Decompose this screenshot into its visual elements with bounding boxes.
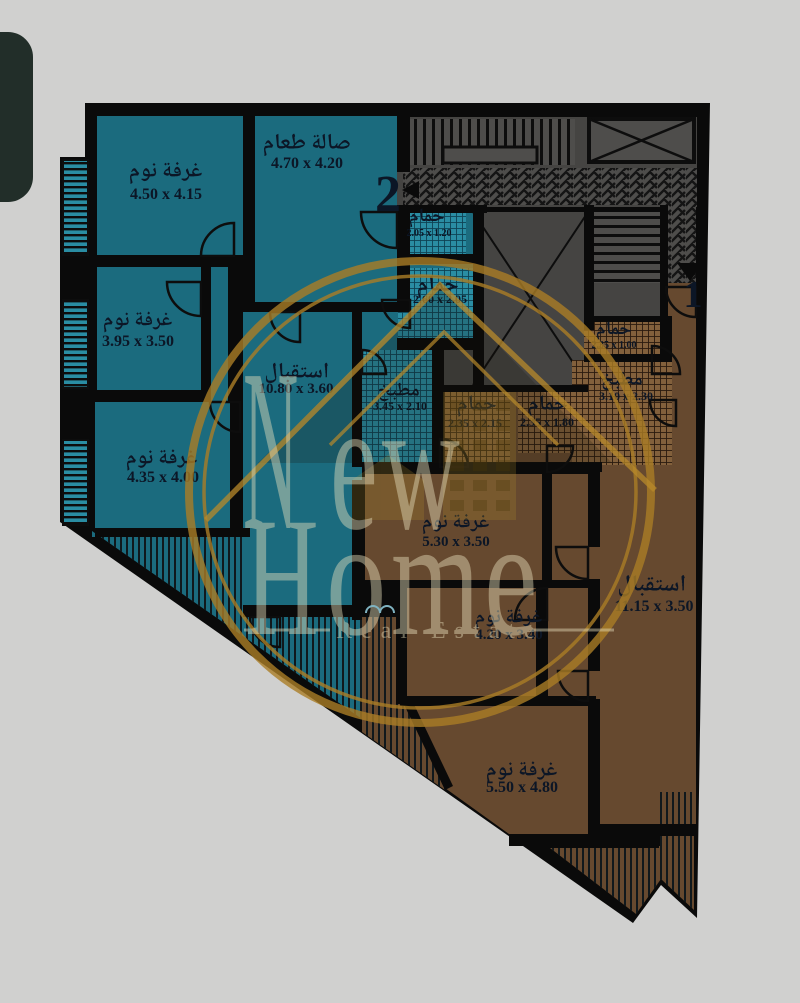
svg-text:4.70 x 4.20: 4.70 x 4.20 bbox=[271, 155, 343, 172]
svg-text:1: 1 bbox=[684, 274, 703, 316]
svg-text:2.05 x 1.20: 2.05 x 1.20 bbox=[407, 228, 452, 239]
svg-text:2: 2 bbox=[375, 166, 401, 223]
svg-text:H: H bbox=[245, 484, 319, 672]
svg-text:Real Estate: Real Estate bbox=[336, 618, 544, 644]
svg-text:3.95 x 3.50: 3.95 x 3.50 bbox=[102, 333, 174, 350]
svg-text:4.50 x 4.15: 4.50 x 4.15 bbox=[130, 186, 202, 203]
svg-text:5.50 x 4.80: 5.50 x 4.80 bbox=[486, 779, 558, 796]
